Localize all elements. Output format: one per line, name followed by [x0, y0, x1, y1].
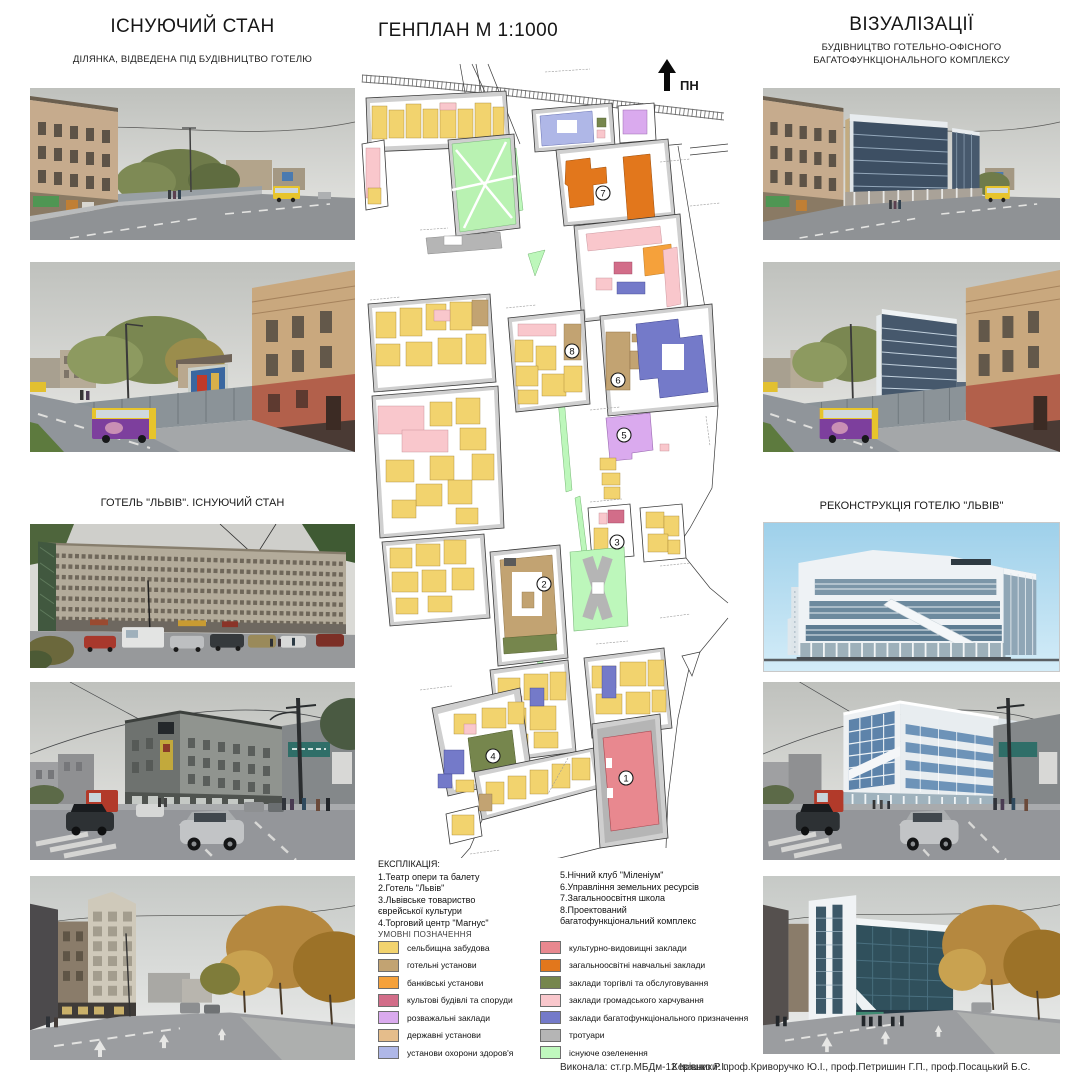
svg-text:5: 5	[621, 430, 626, 441]
photo-hotel-existing	[30, 524, 355, 668]
legend-swatch	[378, 976, 399, 989]
explication-item: 3.Львівське товариство єврейської культу…	[378, 895, 498, 918]
block-pink-rows	[574, 214, 688, 322]
photo-render-street-1	[763, 88, 1060, 240]
svg-text:1: 1	[623, 773, 628, 784]
map-marker-4: 4	[486, 749, 500, 763]
genplan-title: ГЕНПЛАН М 1:1000	[368, 20, 568, 42]
svg-text:8: 8	[569, 346, 574, 357]
photo-existing-street-1	[30, 88, 355, 240]
legend-item: культурно-видовищні заклади	[540, 941, 748, 954]
left-column-title: ІСНУЮЧИЙ СТАН	[30, 16, 355, 38]
legend-col2: культурно-видовищні заклади загальноосві…	[540, 941, 748, 1064]
svg-text:3: 3	[614, 537, 619, 548]
block-west-strip	[362, 140, 388, 210]
legend-swatch	[378, 1029, 399, 1042]
explication-col1: ЕКСПЛІКАЦІЯ: 1.Театр опери та балету 2.Г…	[378, 859, 498, 929]
traffic-island	[682, 652, 700, 676]
right-column-subtitle-2: БАГАТОФУНКЦІОНАЛЬНОГО КОМПЛЕКСУ	[763, 55, 1060, 66]
explication-item: 4.Торговий центр "Магнус"	[378, 918, 498, 930]
svg-text:6: 6	[615, 375, 620, 386]
legend-item: розважальні заклади	[378, 1011, 513, 1024]
legend-item: тротуари	[540, 1029, 748, 1042]
presentation-board: ІСНУЮЧИЙ СТАН ДІЛЯНКА, ВІДВЕДЕНА ПІД БУД…	[0, 0, 1080, 1080]
legend-swatch	[378, 994, 399, 1007]
svg-text:2: 2	[541, 579, 546, 590]
legend-swatch	[540, 1029, 561, 1042]
map-marker-7: 7	[596, 186, 610, 200]
map-marker-1: 1	[619, 771, 633, 785]
photo-render-intersection	[763, 682, 1060, 860]
legend-swatch	[540, 994, 561, 1007]
park	[448, 134, 520, 236]
photo-existing-street-2	[30, 262, 355, 452]
explication-item: 7.Загальноосвітня школа	[560, 893, 710, 905]
explication-title: ЕКСПЛІКАЦІЯ:	[378, 859, 498, 871]
legend-item: готельні установи	[378, 959, 513, 972]
svg-text:4: 4	[490, 751, 495, 762]
legend-swatch	[540, 959, 561, 972]
photo-render-street-5	[763, 876, 1060, 1054]
photo-render-street-2	[763, 262, 1060, 452]
legend-swatch	[540, 976, 561, 989]
map-marker-3: 3	[610, 535, 624, 549]
right-column-title: ВІЗУАЛІЗАЦІЇ	[763, 14, 1060, 36]
legend-item: державні установи	[378, 1029, 513, 1042]
parking	[426, 232, 502, 254]
legend-item: банківські установи	[378, 976, 513, 989]
supervisors-credit: Керівники: проф.Криворучко Ю.І., проф.Пе…	[672, 1062, 1030, 1073]
block-l2	[372, 386, 504, 538]
hotel-existing-label: ГОТЕЛЬ "ЛЬВІВ". ІСНУЮЧИЙ СТАН	[30, 497, 355, 509]
map-marker-8: 8	[565, 344, 579, 358]
map-marker-2: 2	[537, 577, 551, 591]
photo-render-hotel-elevation	[763, 522, 1060, 672]
legend-swatch	[378, 959, 399, 972]
block-top-right-small	[618, 103, 656, 143]
legend-col1: сельбищна забудова готельні установи бан…	[378, 941, 513, 1064]
block-hotel	[490, 545, 568, 666]
block-5	[600, 413, 669, 499]
explication-item: 1.Театр опери та балету	[378, 872, 498, 884]
block-8	[508, 310, 590, 412]
green-square	[570, 547, 628, 631]
map-marker-6: 6	[611, 373, 625, 387]
map-marker-5: 5	[617, 428, 631, 442]
left-column-subtitle: ДІЛЯНКА, ВІДВЕДЕНА ПІД БУДІВНИЦТВО ГОТЕЛ…	[30, 54, 355, 65]
legend-swatch	[540, 1011, 561, 1024]
svg-text:7: 7	[600, 188, 605, 199]
block-l3	[382, 534, 490, 626]
legend-item: загальноосвітні навчальні заклади	[540, 959, 748, 972]
legend-item: заклади громадського харчування	[540, 994, 748, 1007]
legend-item: культові будівлі та споруди	[378, 994, 513, 1007]
explication-item: 8.Проектований багатофункціональний комп…	[560, 905, 710, 928]
block-6	[600, 304, 718, 416]
genplan-map: 1 2 3 4 5 6 7 8	[360, 58, 730, 858]
legend-item: заклади торгівлі та обслуговування	[540, 976, 748, 989]
hotel-reconstruction-label: РЕКОНСТРУКЦІЯ ГОТЕЛЮ "ЛЬВІВ"	[763, 500, 1060, 512]
right-column-subtitle-1: БУДІВНИЦТВО ГОТЕЛЬНО-ОФІСНОГО	[763, 42, 1060, 53]
legend-swatch	[540, 1046, 561, 1059]
legend-item: сельбищна забудова	[378, 941, 513, 954]
legend-item: існуюче озеленення	[540, 1046, 748, 1059]
legend-swatch	[378, 1046, 399, 1059]
legend-swatch	[378, 1011, 399, 1024]
photo-intersection-existing	[30, 682, 355, 860]
block-healthcare	[532, 103, 615, 152]
legend-item: установи охорони здоров'я	[378, 1046, 513, 1059]
block-l1	[368, 294, 496, 392]
legend-item: заклади багатофункціонального призначенн…	[540, 1011, 748, 1024]
explication-col2: 5.Нічний клуб "Міленіум" 6.Управління зе…	[560, 870, 710, 928]
explication-item: 6.Управління земельних ресурсів	[560, 882, 710, 894]
explication-item: 2.Готель "Львів"	[378, 883, 498, 895]
block-school	[556, 139, 675, 226]
explication-item: 5.Нічний клуб "Міленіум"	[560, 870, 710, 882]
legend-swatch	[540, 941, 561, 954]
legend-title: УМОВНІ ПОЗНАЧЕННЯ	[378, 930, 472, 939]
photo-street-existing-5	[30, 876, 355, 1060]
legend-swatch	[378, 941, 399, 954]
